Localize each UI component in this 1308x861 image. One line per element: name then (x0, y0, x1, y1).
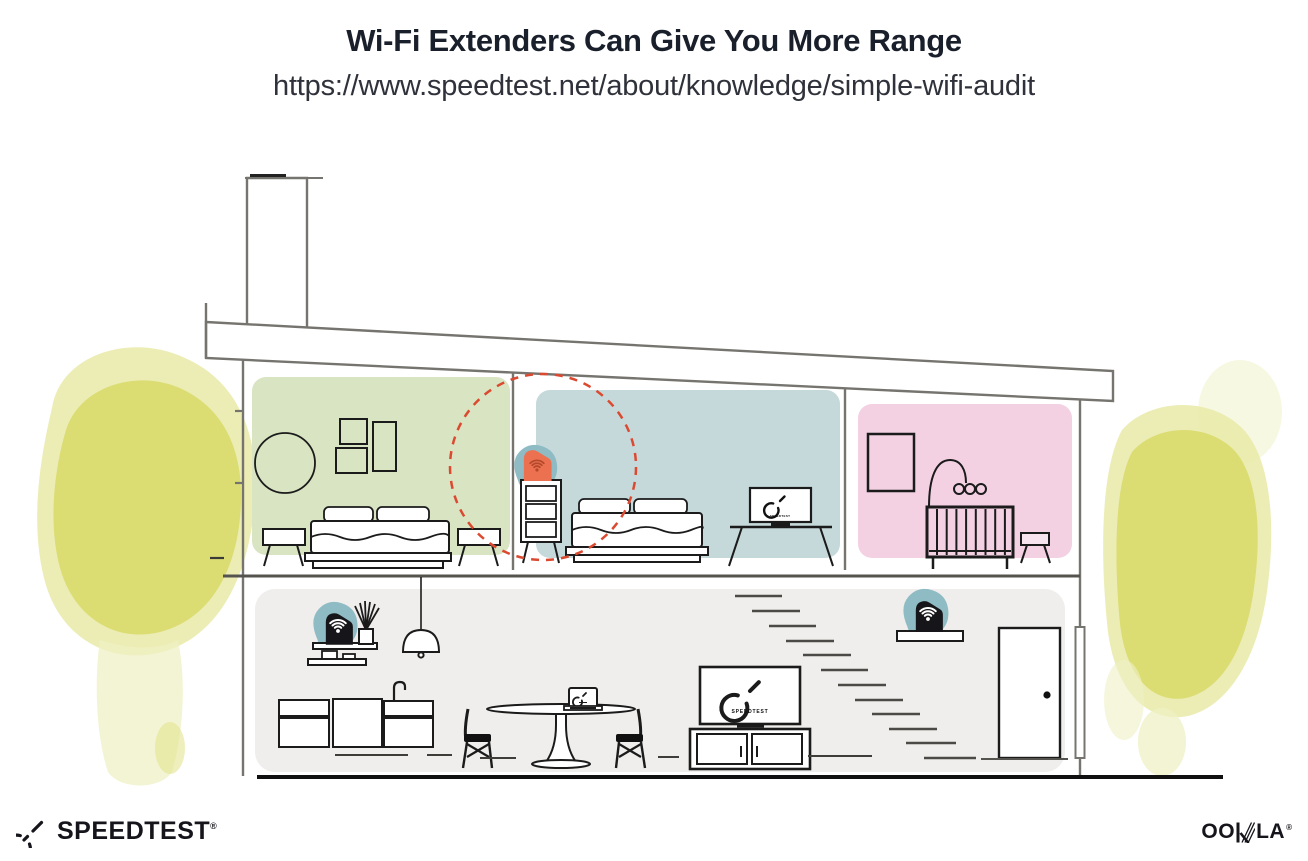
house-illustration: SPEEDTEST (0, 0, 1308, 861)
infographic-canvas: SPEEDTEST (0, 0, 1308, 861)
bed-left (305, 507, 451, 568)
page-title: Wi-Fi Extenders Can Give You More Range (0, 24, 1308, 58)
door-knob (1043, 691, 1050, 698)
ookla-registered-mark: ® (1286, 823, 1292, 832)
ookla-wordmark-right: LA (1256, 820, 1285, 844)
ookla-wordmark-left: OO (1201, 820, 1235, 844)
speedtest-logo: SPEEDTEST ® (16, 814, 217, 848)
tv-screen-label: SPEEDTEST (732, 709, 769, 715)
header: Wi-Fi Extenders Can Give You More Range … (0, 24, 1308, 103)
door-jamb (1076, 627, 1085, 758)
tv-living-room: SPEEDTEST (690, 667, 810, 769)
speedtest-wordmark: SPEEDTEST (57, 817, 210, 846)
ookla-k-glyph (1236, 822, 1255, 843)
extender-shelf (897, 631, 963, 641)
tv-screen-label: SPEEDTEST (770, 514, 791, 518)
speedtest-gauge-icon (16, 814, 50, 848)
laptop (564, 688, 602, 710)
media-console (690, 729, 810, 769)
chimney (245, 176, 323, 329)
ookla-logo: OO LA ® (1201, 820, 1292, 844)
foliage-left (37, 347, 255, 785)
ground-line (257, 775, 1223, 779)
bed-middle (566, 499, 708, 562)
foliage-right (1103, 360, 1282, 776)
speedtest-registered-mark: ® (210, 821, 217, 831)
source-url: https://www.speedtest.net/about/knowledg… (0, 70, 1308, 103)
